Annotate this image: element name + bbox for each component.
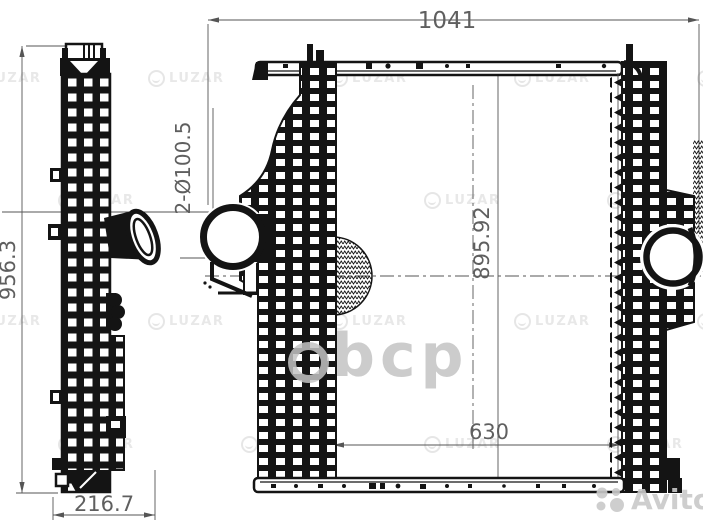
dimension-core-height: 895.92 xyxy=(470,206,494,279)
avito-watermark: Avito xyxy=(590,481,703,517)
drawing-canvas: LUZARLUZARLUZARLUZARLUZARLUZARLUZARLUZAR… xyxy=(0,0,703,525)
dimension-port-callout: 2-Ø100.5 xyxy=(171,122,195,215)
dimension-mount-width: 630 xyxy=(469,420,509,444)
technical-drawing: 1041 956.3 216.7 895.92 630 2-Ø100.5 xyxy=(0,0,703,525)
dimension-side-depth: 216.7 xyxy=(74,492,134,516)
front-view xyxy=(198,44,703,493)
center-watermark-ring-icon xyxy=(288,342,329,383)
center-watermark-text: bcp xyxy=(332,330,468,382)
center-watermark: bcp xyxy=(288,330,468,383)
avito-logo-icon xyxy=(590,481,628,517)
dimension-side-height: 956.3 xyxy=(0,240,20,300)
avito-watermark-text: Avito xyxy=(631,483,703,516)
dimension-overall-width: 1041 xyxy=(418,8,477,34)
side-view xyxy=(48,44,164,492)
